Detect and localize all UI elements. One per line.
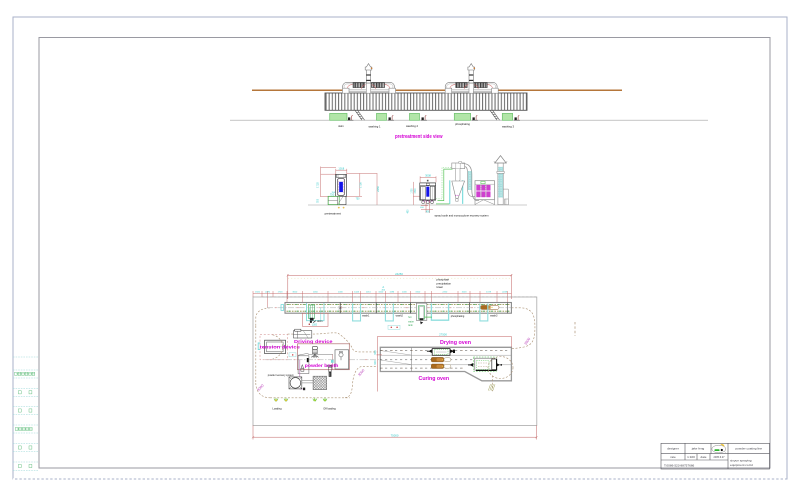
svg-text:1500: 1500 [312,324,318,326]
svg-text:equipment co.ltd: equipment co.ltd [730,463,753,467]
svg-text:wash1: wash1 [362,314,370,317]
svg-text:2250: 2250 [442,292,448,294]
svg-text:phosphating: phosphating [451,315,465,318]
svg-text:spray booth and monocyclone re: spray booth and monocyclone recovery sys… [435,213,490,217]
svg-text:skim: skim [338,124,344,128]
svg-text:1018: 1018 [338,167,344,171]
svg-text:1000: 1000 [338,292,344,294]
svg-text:1450: 1450 [313,292,319,294]
svg-text:2248: 2248 [502,292,508,294]
svg-text:phosphate: phosphate [437,278,450,282]
svg-text:skim: skim [317,319,322,323]
svg-text:1750: 1750 [412,188,414,194]
svg-text:washing 1: washing 1 [368,124,381,128]
svg-text:hot: hot [408,316,412,319]
svg-text:1500: 1500 [415,292,421,294]
svg-text:tower: tower [437,285,444,289]
svg-text:Curing oven: Curing oven [419,376,450,382]
svg-text:wash2: wash2 [396,314,404,317]
svg-text:powder recovery system: powder recovery system [268,374,294,377]
svg-text:Drying oven: Drying oven [440,340,471,346]
svg-text:1750: 1750 [359,182,363,188]
svg-text:1728: 1728 [486,292,492,294]
svg-text:1000: 1000 [378,292,384,294]
svg-text:1700: 1700 [278,292,284,294]
svg-text:2005.6.27: 2005.6.27 [713,456,725,459]
svg-text:pretreatment side view: pretreatment side view [395,134,443,140]
svg-text:pretreatment: pretreatment [325,211,342,215]
svg-text:rate: rate [670,455,676,459]
svg-text:powder booth: powder booth [305,363,339,368]
svg-text:1:100: 1:100 [687,455,695,459]
svg-text:1000: 1000 [462,292,468,294]
svg-text:24250: 24250 [395,272,403,276]
svg-text:tension device: tension device [260,344,301,349]
svg-text:1725: 1725 [316,182,320,188]
svg-text:washing 2: washing 2 [406,124,419,128]
svg-text:washing 3: washing 3 [502,124,515,128]
svg-text:powder coating line: powder coating line [735,446,762,450]
svg-text:wash3: wash3 [490,314,498,317]
svg-text:A: A [382,285,384,289]
svg-text:1451: 1451 [366,292,372,294]
svg-text:Loading: Loading [272,406,282,410]
svg-text:27500: 27500 [439,333,447,337]
svg-text:date: date [700,455,706,459]
svg-text:tank: tank [408,324,413,327]
svg-text:precipitation: precipitation [437,281,452,285]
svg-text:1500: 1500 [255,292,261,294]
svg-text:2270: 2270 [265,292,271,294]
svg-text:designer: designer [667,447,679,451]
svg-text:3008: 3008 [425,174,431,178]
svg-text:Off loading: Off loading [323,406,336,410]
svg-text:3000: 3000 [292,292,298,294]
svg-text:jake feng: jake feng [691,447,705,451]
svg-text:2450: 2450 [376,186,380,192]
svg-text:75000: 75000 [391,434,399,438]
svg-text:Driving device: Driving device [294,339,333,344]
svg-text:phosphating: phosphating [455,122,470,126]
svg-text:900: 900 [373,360,377,365]
svg-text:900: 900 [373,350,377,355]
svg-text:1000: 1000 [402,292,408,294]
svg-text:1443: 1443 [354,292,360,294]
svg-text:xinyue spraying: xinyue spraying [730,458,752,462]
svg-text:T:0086-523-88757666: T:0086-523-88757666 [664,463,695,467]
svg-text:1500: 1500 [415,188,417,194]
svg-text:1196: 1196 [389,292,394,294]
